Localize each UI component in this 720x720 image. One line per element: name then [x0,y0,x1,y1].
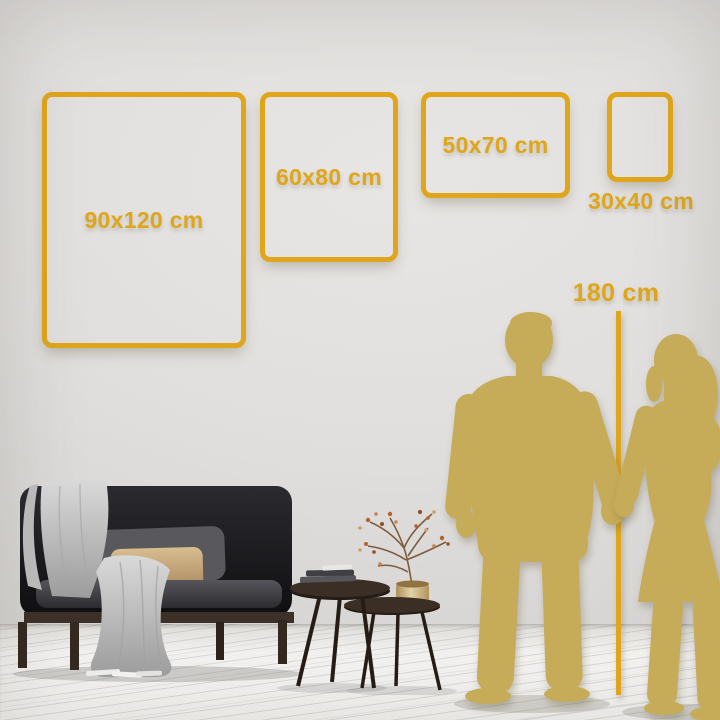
sofa-leg [18,622,27,668]
man-silhouette [444,312,630,704]
size-guide-image: 90x120 cm 60x80 cm 50x70 cm 30x40 cm 180… [0,0,720,720]
woman-back-leg [692,593,720,712]
man-right-leg [541,541,583,692]
frame-60x80: 60x80 cm [260,92,398,262]
woman-hand [614,493,634,517]
man-foot [465,688,511,704]
frame-90x120-label: 90x120 cm [84,207,203,234]
dried-flowers [358,510,450,566]
frame-90x120: 90x120 cm [42,92,246,348]
small-table-top [344,597,440,613]
frame-30x40-label: 30x40 cm [586,188,696,215]
woman-skirt [638,516,720,602]
couple-silhouettes [440,302,720,720]
frame-60x80-label: 60x80 cm [276,164,382,191]
frame-50x70: 50x70 cm [421,92,570,198]
man-left-leg [476,541,521,695]
frame-30x40 [607,92,673,182]
sofa-leg [70,622,79,670]
man-hair [510,312,552,334]
paper [136,671,162,677]
vase-rim [396,581,429,588]
frame-50x70-label: 50x70 cm [443,132,549,159]
sofa [8,478,308,683]
sofa-leg [216,622,224,660]
dried-branch-plant [368,514,446,586]
man-left-hand [456,510,476,538]
man-foot [544,686,590,702]
woman-silhouette [614,334,720,720]
woman-foot [644,701,684,715]
woman-front-leg [646,593,684,709]
woman-hair-strand [646,366,662,402]
book [306,570,354,577]
